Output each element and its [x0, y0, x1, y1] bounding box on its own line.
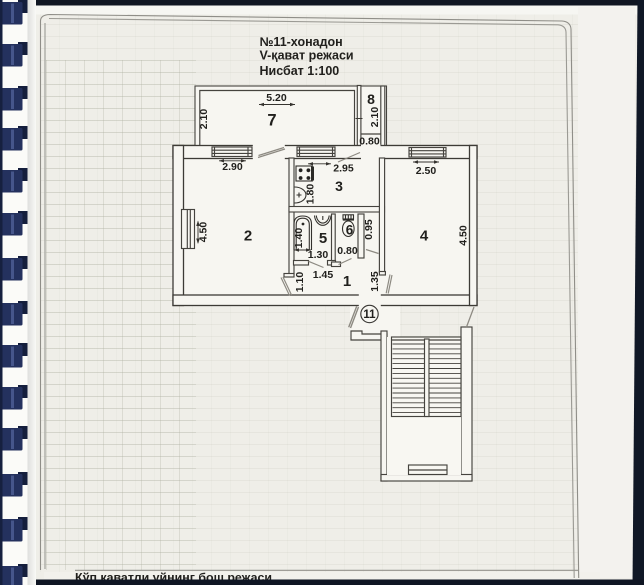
- svg-text:1.10: 1.10: [294, 272, 306, 293]
- svg-text:7: 7: [267, 112, 276, 130]
- svg-text:4: 4: [420, 228, 429, 245]
- svg-text:1.30: 1.30: [308, 249, 329, 261]
- svg-text:8: 8: [367, 91, 375, 107]
- svg-text:1.35: 1.35: [369, 271, 381, 292]
- svg-text:5: 5: [319, 230, 327, 247]
- svg-text:№11-хонадон: №11-хонадон: [260, 35, 343, 49]
- svg-text:6: 6: [346, 223, 354, 238]
- svg-text:2.90: 2.90: [222, 161, 243, 173]
- svg-text:11: 11: [363, 309, 376, 321]
- svg-text:0.80: 0.80: [337, 245, 358, 257]
- svg-text:0.80: 0.80: [359, 136, 380, 148]
- svg-text:1.45: 1.45: [313, 269, 334, 281]
- svg-text:2: 2: [244, 228, 252, 245]
- svg-text:2.10: 2.10: [198, 109, 210, 130]
- svg-text:0.95: 0.95: [363, 219, 375, 240]
- svg-text:5.20: 5.20: [266, 92, 287, 104]
- svg-text:3: 3: [335, 178, 343, 194]
- svg-text:V-қават режаси: V-қават режаси: [260, 49, 354, 63]
- svg-text:2.50: 2.50: [416, 165, 437, 177]
- svg-text:Нисбат 1:100: Нисбат 1:100: [260, 64, 340, 78]
- svg-text:2.10: 2.10: [369, 107, 381, 128]
- svg-text:4.50: 4.50: [458, 225, 470, 246]
- svg-text:1.40: 1.40: [293, 228, 305, 249]
- svg-text:2.95: 2.95: [333, 163, 354, 175]
- svg-text:1.80: 1.80: [305, 184, 317, 205]
- svg-text:1: 1: [343, 273, 351, 290]
